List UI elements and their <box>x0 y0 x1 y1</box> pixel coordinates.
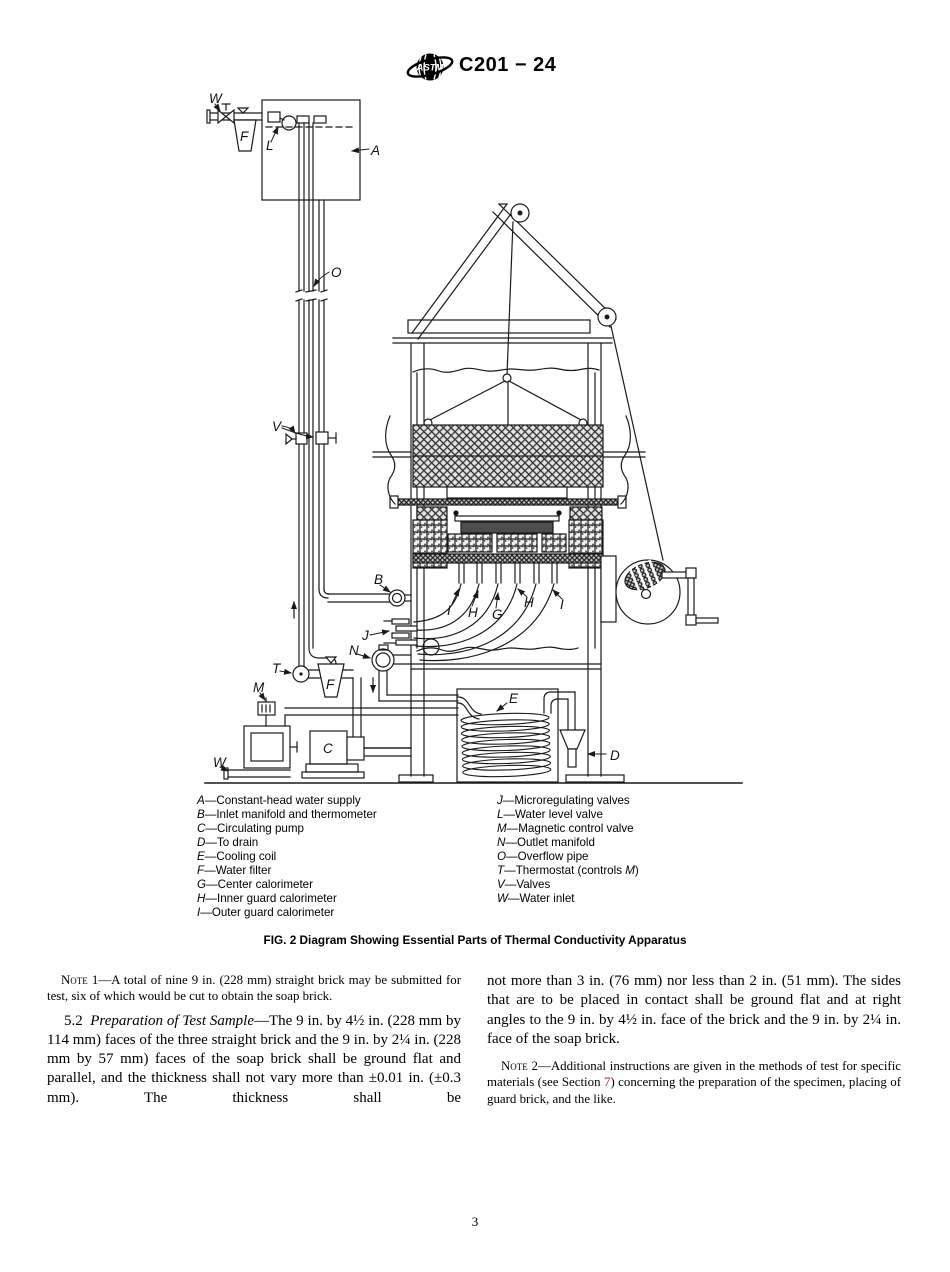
legend-desc: Outlet manifold <box>517 836 595 849</box>
legend-key: O <box>497 850 506 863</box>
legend-item-w: W—Water inlet <box>497 892 639 906</box>
calorimeter-tubes <box>459 563 557 583</box>
label-f-bottom: F <box>326 677 335 692</box>
legend-key: G <box>197 878 206 891</box>
legend-item-h: H—Inner guard calorimeter <box>197 892 377 906</box>
overflow-valves-v <box>286 432 336 444</box>
legend-item-b: B—Inlet manifold and thermometer <box>197 808 377 822</box>
label-i-right: I <box>560 597 564 612</box>
label-h-right: H <box>524 595 534 610</box>
legend-left-column: A—Constant-head water supply B—Inlet man… <box>197 794 377 920</box>
label-a: A <box>370 143 380 158</box>
bottom-water-inlet <box>224 768 290 779</box>
fig2-apparatus-diagram: W F L A O V B I H G H I J N T M F C E W … <box>200 90 752 790</box>
legend-key: H <box>197 892 205 905</box>
note-2-label: Note 2 <box>501 1059 538 1073</box>
legend-key: L <box>497 808 503 821</box>
legend-key: V <box>497 878 505 891</box>
label-f-top: F <box>240 129 249 144</box>
label-e: E <box>509 691 519 706</box>
legend-item-l: L—Water level valve <box>497 808 639 822</box>
body-column-right: not more than 3 in. (76 mm) nor less tha… <box>487 972 901 1107</box>
circulating-pump-c <box>302 731 411 778</box>
legend-desc: Constant-head water supply <box>216 794 360 807</box>
page-header: ASTM C201 − 24 <box>0 46 950 92</box>
legend-desc: Valves <box>516 878 550 891</box>
astm-logo-icon: ASTM <box>405 48 455 88</box>
hoist-cable <box>611 326 663 560</box>
brick-stack <box>373 416 645 520</box>
page-number: 3 <box>0 1214 950 1230</box>
legend-item-t: T—Thermostat (controls M) <box>497 864 639 878</box>
legend-desc: ) <box>635 864 639 877</box>
legend-key: B <box>197 808 205 821</box>
section-title: Preparation of Test Sample <box>90 1013 254 1029</box>
document-page: ASTM C201 − 24 <box>0 0 950 1272</box>
legend-key: T <box>497 864 504 877</box>
calorimeter-assembly <box>413 516 603 661</box>
note-1-label: Note 1 <box>61 973 98 987</box>
legend-desc: Microregulating valves <box>514 794 629 807</box>
note-1: Note 1—A total of nine 9 in. (228 mm) st… <box>47 972 461 1005</box>
legend-key: A <box>197 794 205 807</box>
label-v: V <box>272 419 283 434</box>
section-5-2-paragraph: 5.2 Preparation of Test Sample—The 9 in.… <box>47 1012 461 1108</box>
inlet-manifold-b <box>319 589 411 606</box>
legend-desc: Inlet manifold and thermometer <box>216 808 376 821</box>
legend-item-c: C—Circulating pump <box>197 822 377 836</box>
legend-desc: Thermostat (controls <box>516 864 626 877</box>
label-c: C <box>323 741 333 756</box>
legend-desc: Water level valve <box>515 808 603 821</box>
riser-pipes <box>296 123 327 666</box>
label-l: L <box>266 138 274 153</box>
body-column-left: Note 1—A total of nine 9 in. (228 mm) st… <box>47 972 461 1108</box>
note-1-text: —A total of nine 9 in. (228 mm) straight… <box>47 973 461 1003</box>
legend-desc: Circulating pump <box>217 822 304 835</box>
legend-item-d: D—To drain <box>197 836 377 850</box>
legend-item-o: O—Overflow pipe <box>497 850 639 864</box>
legend-item-e: E—Cooling coil <box>197 850 377 864</box>
outlet-manifold-n <box>372 645 458 701</box>
legend-desc: Magnetic control valve <box>518 822 633 835</box>
legend-item-i: I—Outer guard calorimeter <box>197 906 377 920</box>
legend-desc: Overflow pipe <box>518 850 589 863</box>
legend-key: E <box>197 850 205 863</box>
label-t: T <box>272 661 282 676</box>
figure-caption: FIG. 2 Diagram Showing Essential Parts o… <box>0 933 950 947</box>
note-2: Note 2—Additional instructions are given… <box>487 1058 901 1107</box>
legend-item-j: J—Microregulating valves <box>497 794 639 808</box>
label-n: N <box>349 643 359 658</box>
legend-desc: Outer guard calorimeter <box>212 906 334 919</box>
legend-item-m: M—Magnetic control valve <box>497 822 639 836</box>
legend-item-g: G—Center calorimeter <box>197 878 377 892</box>
legend-key: C <box>197 822 205 835</box>
section-5-2-continuation: not more than 3 in. (76 mm) nor less tha… <box>487 972 901 1049</box>
legend-item-a: A—Constant-head water supply <box>197 794 377 808</box>
legend-desc: To drain <box>217 836 258 849</box>
label-b: B <box>374 572 383 587</box>
legend-key: N <box>497 836 505 849</box>
label-m: M <box>253 680 265 695</box>
section-number: 5.2 <box>64 1013 83 1029</box>
legend-key: M <box>497 822 507 835</box>
legend-item-f: F—Water filter <box>197 864 377 878</box>
legend-desc: Cooling coil <box>216 850 276 863</box>
legend-key: W <box>497 892 508 905</box>
label-w-bottom: W <box>213 755 227 770</box>
label-o: O <box>331 265 342 280</box>
legend-key: I <box>197 906 200 919</box>
label-g: G <box>492 607 503 622</box>
microregulating-valves-j <box>384 619 417 645</box>
hoist-winch <box>601 556 718 625</box>
label-d: D <box>610 748 620 763</box>
legend-desc: Water filter <box>216 864 272 877</box>
legend-desc: Water inlet <box>520 892 575 905</box>
label-j: J <box>361 628 369 643</box>
legend-key: D <box>197 836 205 849</box>
legend-desc: Inner guard calorimeter <box>217 892 337 905</box>
label-h-left: H <box>468 605 478 620</box>
legend-desc-italic: M <box>625 864 635 877</box>
legend-key: J <box>497 794 503 807</box>
document-number: C201 − 24 <box>459 54 556 77</box>
constant-head-tank-a <box>262 100 360 200</box>
label-w-top: W <box>209 91 223 106</box>
legend-item-n: N—Outlet manifold <box>497 836 639 850</box>
legend-desc: Center calorimeter <box>218 878 313 891</box>
drain-funnel-d <box>560 730 585 767</box>
label-i-left: I <box>447 603 451 618</box>
gable-hoist <box>412 204 616 339</box>
legend-key: F <box>197 864 204 877</box>
legend-right-column: J—Microregulating valves L—Water level v… <box>497 794 639 906</box>
legend-item-v: V—Valves <box>497 878 639 892</box>
